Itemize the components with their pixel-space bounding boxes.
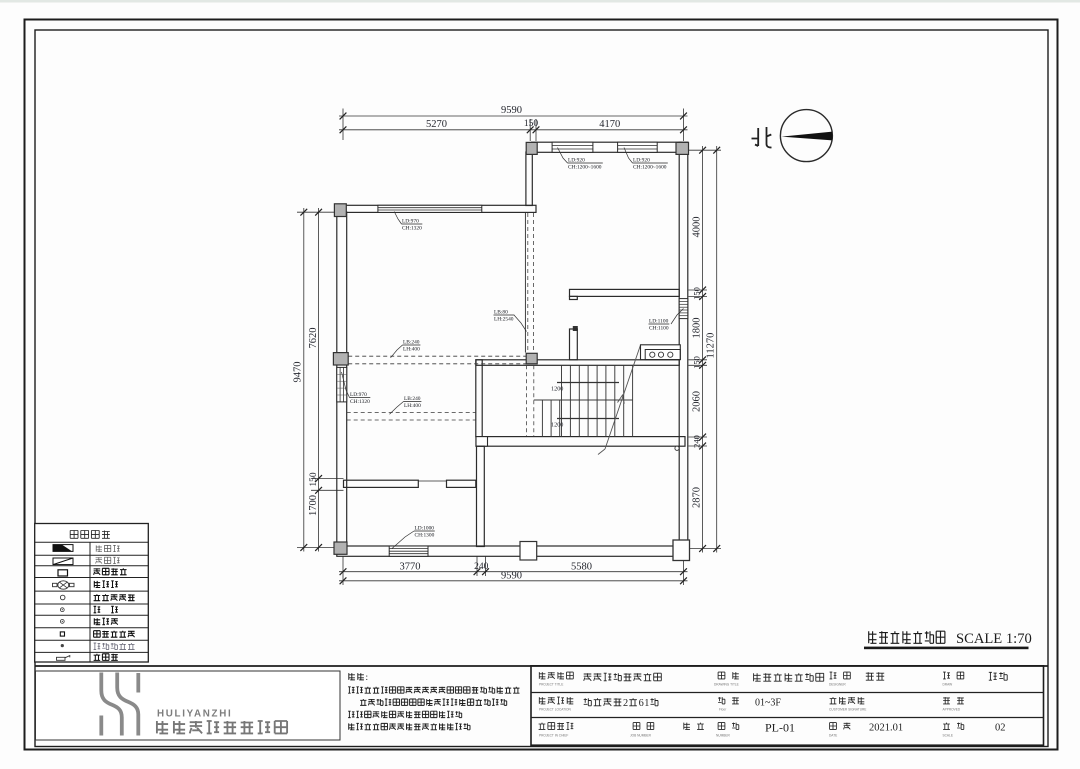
svg-text:CH:1300: CH:1300 [415,532,435,538]
svg-text:DRAW: DRAW [943,683,953,687]
svg-text:PROJECT TITLE: PROJECT TITLE [539,683,563,687]
svg-text:CUSTOMER SIGNATURE: CUSTOMER SIGNATURE [829,708,866,712]
svg-text:SCALE: SCALE [943,734,953,738]
svg-text:2870: 2870 [691,487,702,508]
svg-text:PL-01: PL-01 [765,721,795,735]
svg-text:DESIGNER: DESIGNER [829,683,846,687]
svg-text:LH:400: LH:400 [404,403,421,409]
svg-text:9590: 9590 [501,571,522,582]
svg-text:2060: 2060 [691,391,702,412]
svg-text:1700: 1700 [308,495,319,516]
svg-text:02: 02 [995,723,1006,734]
svg-text:APPROVED: APPROVED [943,708,961,712]
svg-text:PROJECT LOCATION: PROJECT LOCATION [539,708,571,712]
svg-text:LH:2540: LH:2540 [494,316,514,322]
svg-text:5270: 5270 [426,119,447,130]
svg-text:CH:1200~1600: CH:1200~1600 [568,164,602,170]
svg-text:150: 150 [524,119,539,129]
svg-text:1200: 1200 [551,386,563,393]
svg-text:4170: 4170 [599,119,620,130]
svg-text:7620: 7620 [308,328,319,349]
svg-text:PROJECT IN CHIEF: PROJECT IN CHIEF [539,734,568,738]
svg-text:1800: 1800 [691,318,702,339]
svg-text:DATE: DATE [829,734,837,738]
svg-text:1: 1 [644,698,649,709]
svg-text:CH:1100: CH:1100 [649,325,669,331]
svg-text:1200: 1200 [551,422,563,429]
svg-text:Floor: Floor [719,708,727,712]
svg-text:5580: 5580 [571,561,592,572]
svg-text:SCALE 1:70: SCALE 1:70 [956,631,1032,647]
svg-text:NUMBER: NUMBER [716,734,731,738]
svg-text:150: 150 [691,356,701,369]
svg-text:9590: 9590 [501,105,522,116]
svg-text:2: 2 [623,698,628,709]
svg-text:150: 150 [309,472,319,487]
svg-text:01~3F: 01~3F [755,698,781,709]
svg-text::: : [366,672,369,682]
svg-text:4000: 4000 [691,217,702,238]
svg-text:6: 6 [639,698,644,709]
svg-text:HULIYANZHI: HULIYANZHI [157,709,232,720]
svg-text:LH:400: LH:400 [403,346,420,352]
svg-text:240: 240 [691,435,701,448]
svg-text:3770: 3770 [400,561,421,572]
svg-text:9470: 9470 [293,362,304,383]
svg-text:150: 150 [691,287,701,300]
svg-text:DRAWING TITLE: DRAWING TITLE [714,683,739,687]
svg-text:JOB NUMBER: JOB NUMBER [630,734,652,738]
svg-text:2021.01: 2021.01 [869,723,903,734]
svg-text:240: 240 [474,562,489,572]
svg-text:CH:1200~1600: CH:1200~1600 [633,164,667,170]
svg-text:CH:1320: CH:1320 [350,399,370,405]
svg-text:CH:1320: CH:1320 [402,225,422,231]
svg-text:11270: 11270 [705,333,716,359]
